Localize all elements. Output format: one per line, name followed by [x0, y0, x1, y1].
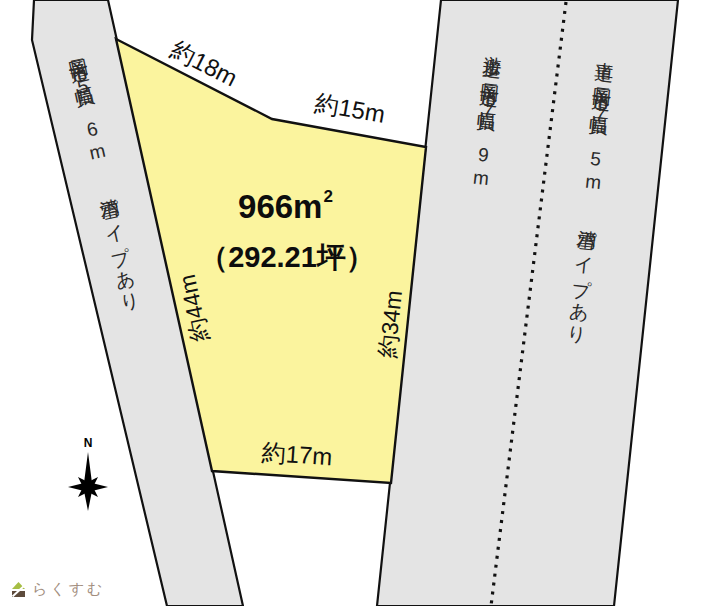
logo-house-icon: [10, 581, 27, 598]
plot-area-exponent: 2: [323, 187, 332, 206]
road-right-shape: [377, 0, 678, 606]
compass-icon: [66, 450, 110, 514]
dimension-bottom: 約17m: [261, 437, 334, 474]
compass-north-label: N: [84, 436, 93, 450]
logo-text: らくすむ: [32, 580, 105, 599]
compass-cardinal-star: [68, 452, 108, 511]
plot-tsubo-label: （292.21坪）: [199, 238, 375, 278]
map-shapes: [0, 0, 728, 606]
plot-area-label: 966m2: [238, 188, 332, 226]
land-plot-map: 長岡市道 幅員5．6m 消雪パイプあり 遊歩道 長岡市道 幅員7．9m 車道 長…: [0, 0, 728, 606]
logo: らくすむ: [10, 580, 105, 599]
plot-area-value: 966m: [238, 188, 322, 225]
